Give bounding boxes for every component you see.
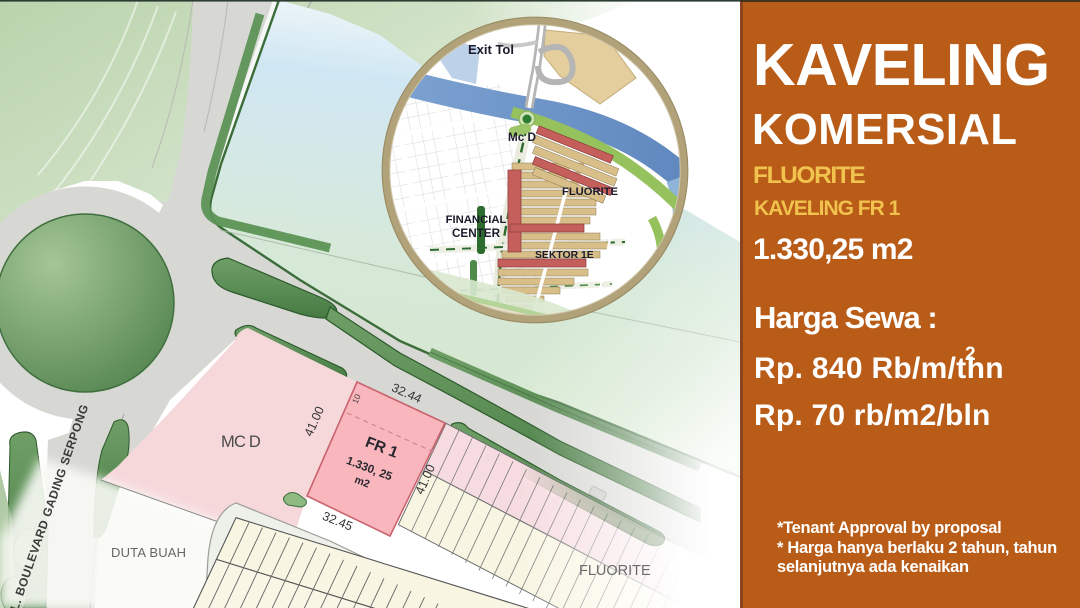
svg-text:Mc D: Mc D	[508, 131, 536, 144]
svg-text:FLUORITE: FLUORITE	[579, 563, 651, 579]
svg-text:FLUORITE: FLUORITE	[562, 186, 618, 198]
svg-text:DUTA BUAH: DUTA BUAH	[111, 545, 186, 560]
svg-text:Exit Tol: Exit Tol	[468, 42, 514, 57]
svg-text:SEKTOR 1E: SEKTOR 1E	[535, 250, 594, 261]
svg-text:MC D: MC D	[221, 433, 261, 451]
svg-text:FINANCIAL: FINANCIAL	[446, 214, 507, 226]
svg-text:CENTER: CENTER	[452, 227, 501, 240]
